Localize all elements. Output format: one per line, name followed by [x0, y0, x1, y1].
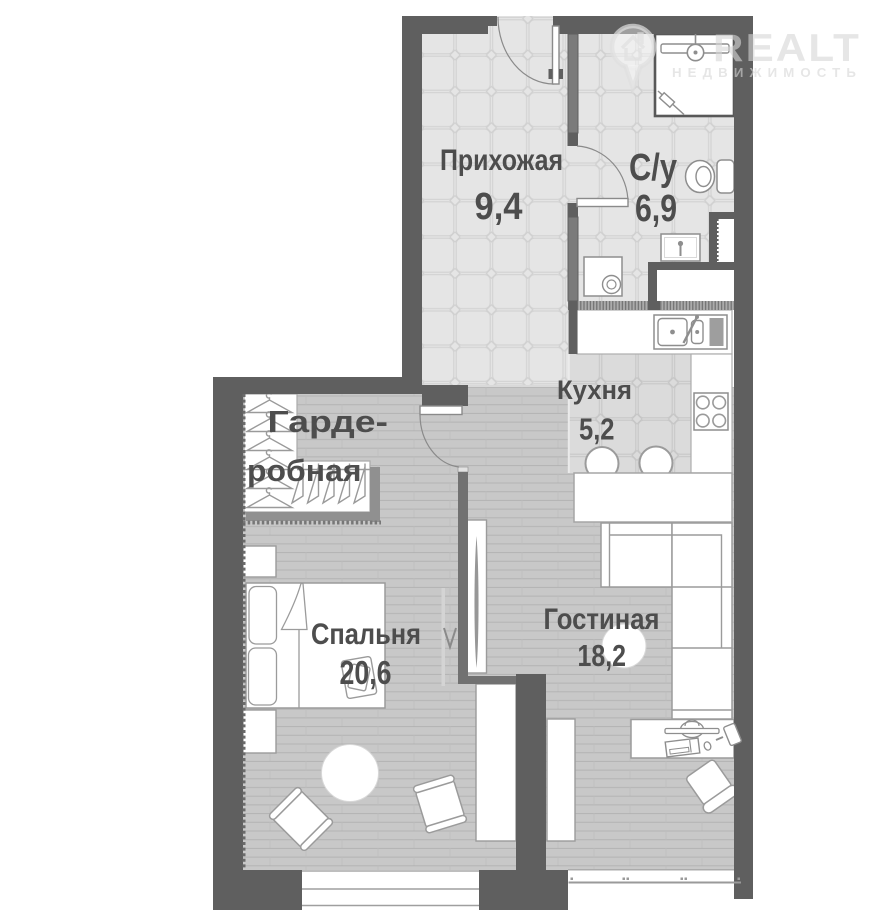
svg-text:робная: робная [247, 453, 362, 488]
svg-text:Гостиная: Гостиная [544, 603, 660, 636]
svg-text:НЕДВИЖИМОСТЬ: НЕДВИЖИМОСТЬ [672, 65, 862, 80]
svg-text:Спальня: Спальня [311, 618, 421, 651]
svg-text:9,4: 9,4 [475, 186, 523, 228]
svg-text:Прихожая: Прихожая [440, 144, 563, 177]
svg-text:Кухня: Кухня [557, 375, 632, 405]
svg-text:Гарде-: Гарде- [268, 404, 389, 439]
svg-text:18,2: 18,2 [578, 638, 627, 673]
svg-text:6,9: 6,9 [635, 188, 677, 230]
svg-text:С/у: С/у [629, 147, 677, 189]
svg-text:REALT: REALT [713, 27, 861, 70]
svg-text:5,2: 5,2 [579, 412, 615, 447]
svg-text:20,6: 20,6 [340, 654, 392, 691]
